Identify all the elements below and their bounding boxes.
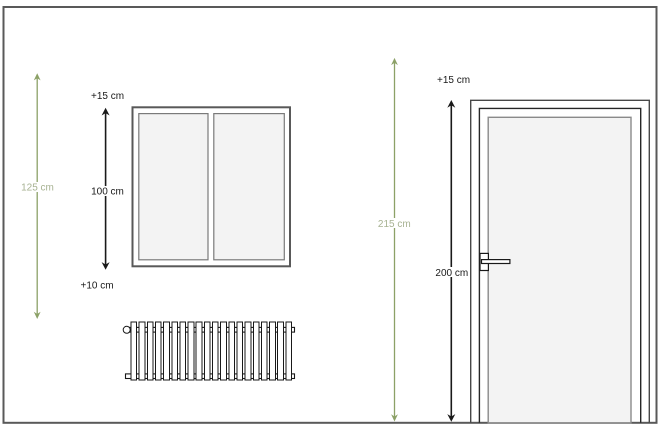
svg-text:200 cm: 200 cm [435,268,468,279]
svg-text:215 cm: 215 cm [378,219,411,230]
svg-text:+15 cm: +15 cm [437,75,470,86]
svg-text:125 cm: 125 cm [21,183,54,194]
svg-text:100 cm: 100 cm [91,187,124,198]
svg-text:+15 cm: +15 cm [91,91,124,102]
svg-text:+10 cm: +10 cm [81,281,114,292]
